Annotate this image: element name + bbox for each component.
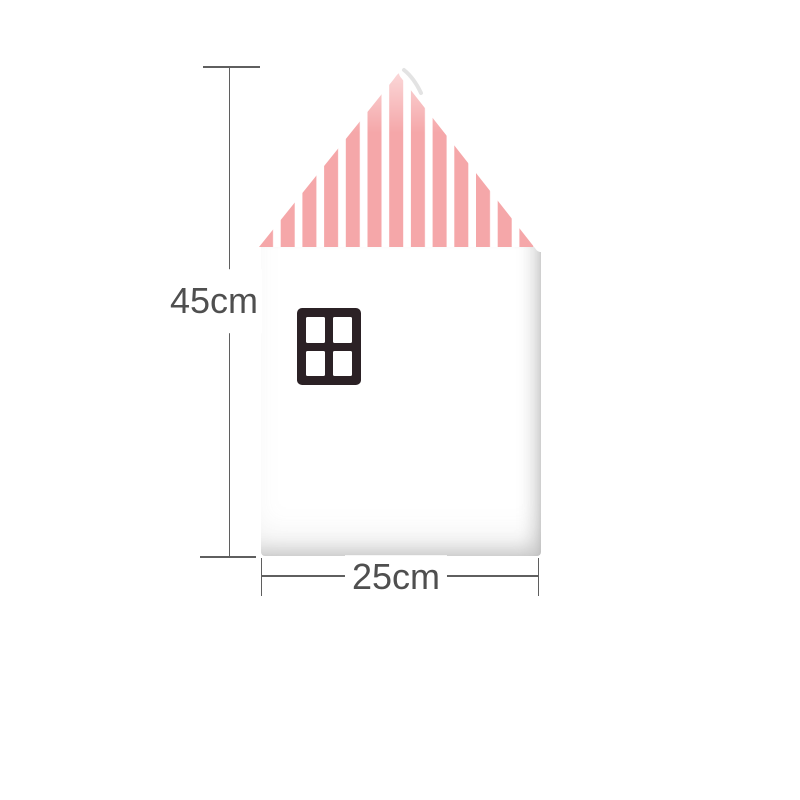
product-dimension-diagram: 45cm 25cm (0, 0, 800, 800)
width-dimension-left-tick (261, 558, 263, 596)
house-body (261, 247, 541, 556)
window-pane (333, 351, 352, 377)
roof-peak-fold-shadow (404, 70, 421, 93)
width-dimension-label: 25cm (345, 555, 447, 599)
window-pane (306, 351, 325, 377)
height-dimension-top-tick (203, 66, 260, 68)
roof-apex-fade (259, 72, 543, 247)
roof-stripes (259, 72, 543, 247)
width-dimension-right-tick (538, 558, 540, 596)
height-dimension-bottom-tick (200, 556, 256, 558)
window-pane (306, 317, 325, 343)
height-dimension-label: 45cm (166, 269, 262, 333)
window-icon (297, 308, 361, 385)
window-pane (333, 317, 352, 343)
roof-right-edge-highlight (405, 73, 541, 246)
